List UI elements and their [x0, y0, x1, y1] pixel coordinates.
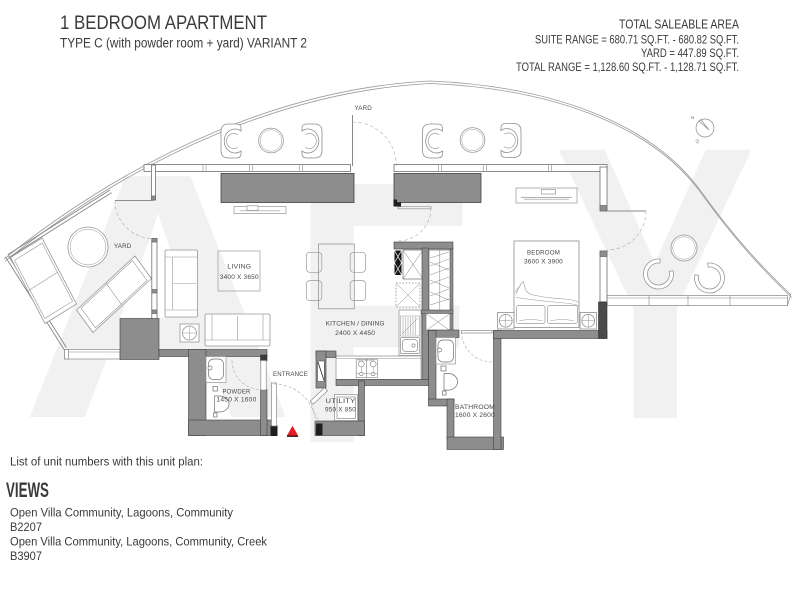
svg-text:BATHROOM: BATHROOM — [455, 404, 495, 411]
svg-text:1450 X 1600: 1450 X 1600 — [217, 397, 257, 404]
svg-text:3600 X 3900: 3600 X 3900 — [524, 259, 563, 266]
svg-text:List of unit numbers with this: List of unit numbers with this unit plan… — [10, 455, 203, 469]
svg-text:ENTRANCE: ENTRANCE — [273, 371, 308, 378]
svg-text:950 X 850: 950 X 850 — [325, 407, 356, 414]
svg-text:KITCHEN / DINING: KITCHEN / DINING — [326, 321, 385, 328]
svg-text:SUITE RANGE = 680.71 SQ.FT. -: SUITE RANGE = 680.71 SQ.FT. - 680.82 SQ.… — [535, 34, 739, 47]
svg-text:VIEWS: VIEWS — [6, 478, 49, 502]
svg-text:YARD = 447.89 SQ.FT.: YARD = 447.89 SQ.FT. — [641, 47, 739, 60]
svg-text:TOTAL RANGE = 1,128.60 SQ.FT.: TOTAL RANGE = 1,128.60 SQ.FT. - 1,128.71… — [516, 61, 739, 74]
svg-text:B3907: B3907 — [10, 549, 42, 563]
svg-text:3400 X 3650: 3400 X 3650 — [220, 274, 259, 281]
svg-text:UTILITY: UTILITY — [326, 398, 356, 405]
svg-text:Q: Q — [696, 139, 700, 144]
svg-text:Open Villa Community, Lagoons,: Open Villa Community, Lagoons, Community… — [10, 535, 268, 549]
svg-text:YARD: YARD — [354, 105, 372, 112]
svg-text:POWDER: POWDER — [223, 389, 251, 396]
svg-text:2400 X 4450: 2400 X 4450 — [335, 330, 375, 337]
svg-text:Y: Y — [554, 66, 757, 502]
svg-text:Open Villa Community, Lagoons,: Open Villa Community, Lagoons, Community — [10, 506, 234, 520]
svg-text:YARD: YARD — [114, 243, 132, 250]
svg-text:1 BEDROOM APARTMENT: 1 BEDROOM APARTMENT — [60, 13, 267, 34]
svg-text:1600 X 2600: 1600 X 2600 — [455, 412, 495, 419]
svg-text:B2207: B2207 — [10, 520, 42, 534]
svg-text:N: N — [691, 115, 694, 120]
svg-text:TOTAL SALEABLE AREA: TOTAL SALEABLE AREA — [619, 17, 739, 31]
svg-text:TYPE C (with powder room + yar: TYPE C (with powder room + yard) VARIANT… — [60, 36, 307, 51]
svg-text:LIVING: LIVING — [227, 264, 251, 271]
svg-text:BEDROOM: BEDROOM — [527, 250, 560, 257]
